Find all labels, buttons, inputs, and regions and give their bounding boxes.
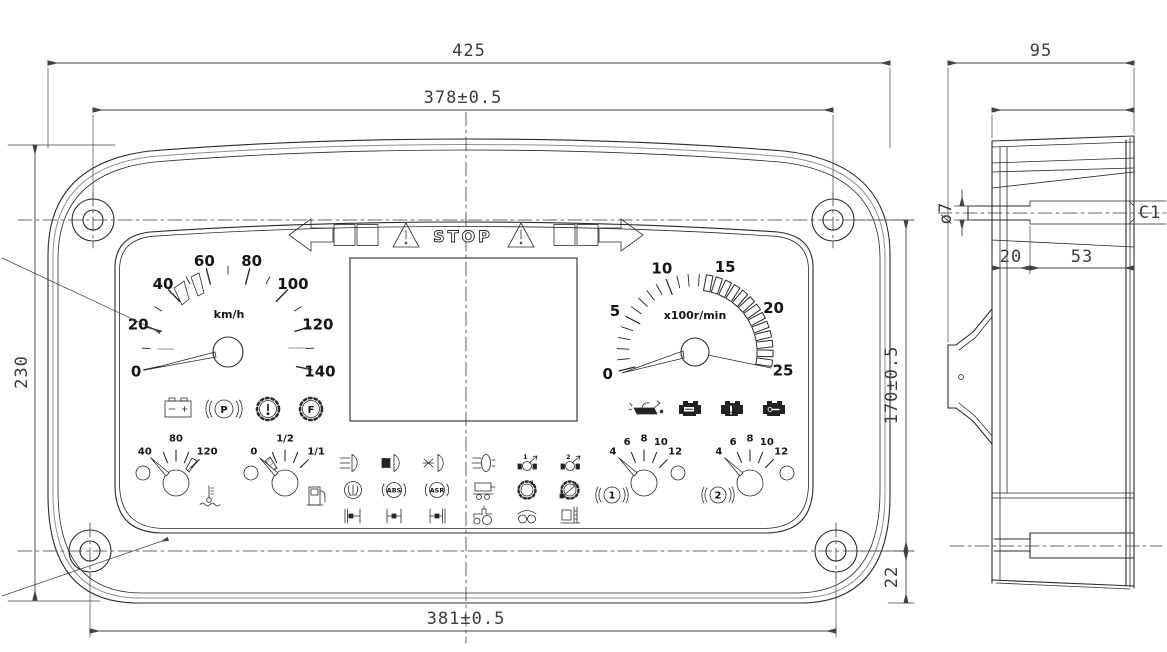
trailer-icon [473,483,495,500]
circuit-1-number: 1 [609,491,616,502]
dimensions: 425 378±0.5 230 170±0.5 22 381±0.5 95 ø7… [2,41,1161,637]
loader-icon [561,507,580,523]
svg-text:10: 10 [651,259,672,277]
asr-icon: ASR [425,483,448,498]
dim-stud-inset: 20 [1000,247,1022,267]
svg-text:12: 12 [668,446,682,457]
svg-text:12: 12 [774,446,788,457]
fan-icon [345,482,362,499]
dim-chamfer: C1 [1139,203,1161,223]
tractor-icon [474,506,492,525]
pressure-gauge-2: 4681012 [715,434,788,468]
dim-overall-height: 230 [12,355,32,389]
gear-fault-letter: F [308,405,315,416]
svg-text:100: 100 [277,275,308,293]
parking-letter: P [220,405,227,416]
fuel-warning-lamp [244,466,258,480]
svg-text:20: 20 [763,299,784,317]
low-range-letter: L [531,479,535,487]
extension-lines [8,68,1134,637]
coolant-temp-icon [200,486,220,506]
engineering-drawing: STOP 020406080100120140 km/h 0510152025 … [0,0,1167,652]
svg-text:120: 120 [197,446,218,457]
pto-2-icon: 2 [561,453,580,471]
speed-zone-mark [174,281,189,305]
gear-shift-icon [560,482,579,499]
pressure2-warning-lamp [780,466,794,480]
tachometer-needle [622,351,684,373]
low-range-icon: L [519,479,536,499]
svg-text:1/1: 1/1 [307,446,325,457]
speed-zone-mark [191,273,204,296]
svg-text:80: 80 [241,252,262,270]
pto-1-number: 1 [523,453,528,461]
svg-text:0: 0 [602,365,612,383]
abs-icon: ABS [382,483,405,498]
battery-icon [165,398,191,417]
dim-overall-width: 425 [452,41,486,61]
brake-circuit-2-icon: 2 [702,487,734,503]
pressure1-warning-lamp [671,466,685,480]
dim-bottom-offset: 22 [882,566,902,588]
dim-side-depth: 95 [1030,41,1052,61]
svg-text:6: 6 [730,437,737,448]
gear-fault-icon: F [300,398,322,420]
pressure-gauge-1-extras: 1 [596,458,685,504]
drawing-canvas: STOP 020406080100120140 km/h 0510152025 … [0,0,1167,652]
dim-mount-width-bottom: 381±0.5 [427,609,506,629]
temp-zone-mark [186,458,197,472]
temperature-gauge: 4080120 [138,434,218,468]
section-lug [968,172,1134,247]
high-beam-icon [340,455,357,472]
dim-mount-width-top: 378±0.5 [424,88,503,108]
svg-text:60: 60 [194,252,215,270]
svg-text:10: 10 [760,437,774,448]
fuel-gauge: 01/21/1 [250,434,325,468]
circuit-2-number: 2 [715,491,722,502]
brake-fault-icon [257,398,279,420]
mounting-stud [968,201,1134,224]
engine-service-icon [763,401,785,416]
svg-text:25: 25 [773,362,794,380]
svg-text:4: 4 [715,446,722,457]
svg-text:0: 0 [250,446,257,457]
lcd-display [350,258,577,421]
stop-label: STOP [433,227,493,246]
fuel-gauge-extras [244,457,325,505]
svg-text:4: 4 [609,446,616,457]
svg-text:40: 40 [153,275,174,293]
engine-stop-icon [679,401,701,416]
tachometer-unit: x100r/min [664,309,727,322]
rear-connector [948,309,992,444]
svg-text:140: 140 [304,363,335,381]
front-diff-lock-icon [345,509,360,523]
svg-text:8: 8 [747,434,754,445]
telltale-grid: 1 2 ABS ASR L [340,453,580,525]
low-beam-icon [382,455,399,472]
svg-text:80: 80 [169,434,183,445]
warning-lamps-right [629,401,785,416]
svg-text:40: 40 [138,446,152,457]
speedometer-unit: km/h [214,308,245,321]
svg-text:1/2: 1/2 [276,434,294,445]
warning-lamps-left: P F [165,398,322,420]
fuel-pump-icon [307,487,325,505]
pressure-gauge-1: 4681012 [609,434,682,468]
speedometer-needle [150,352,216,369]
asr-label: ASR [430,486,445,494]
dim-stud-diameter: ø7 [936,202,956,224]
engine-warning-icon [721,401,743,416]
svg-text:120: 120 [302,315,333,333]
dim-mount-height: 170±0.5 [882,346,902,425]
svg-text:15: 15 [715,258,736,276]
rear-diff-lock-icon [430,509,445,523]
bottom-stud-slot [994,533,1134,558]
pto-1-icon: 1 [518,453,537,471]
svg-text:8: 8 [641,434,648,445]
parking-brake-icon: P [206,400,242,418]
center-diff-lock-icon [387,509,401,523]
abs-label: ABS [387,486,402,494]
svg-text:10: 10 [654,437,668,448]
front-view: STOP 020406080100120140 km/h 0510152025 … [18,112,916,643]
rear-fog-icon [472,455,495,472]
tow-hook-icon [518,511,536,524]
brake-circuit-1-icon: 1 [596,487,628,503]
oil-pressure-icon [629,401,663,414]
svg-text:0: 0 [131,363,141,381]
tachometer-hub [681,338,709,366]
dim-slot-length: 53 [1071,247,1093,267]
temperature-gauge-extras [136,458,220,507]
side-body [992,136,1134,589]
svg-text:6: 6 [624,437,631,448]
pressure-gauge-2-extras: 2 [702,458,794,504]
pto-2-number: 2 [566,453,571,461]
tachometer-extras: x100r/min [622,309,771,373]
dial-window [115,222,813,533]
speedometer-hub [213,337,243,367]
side-view [938,136,1166,589]
front-fog-icon [423,455,443,472]
svg-text:5: 5 [610,302,620,320]
temp-warning-lamp [136,466,150,480]
